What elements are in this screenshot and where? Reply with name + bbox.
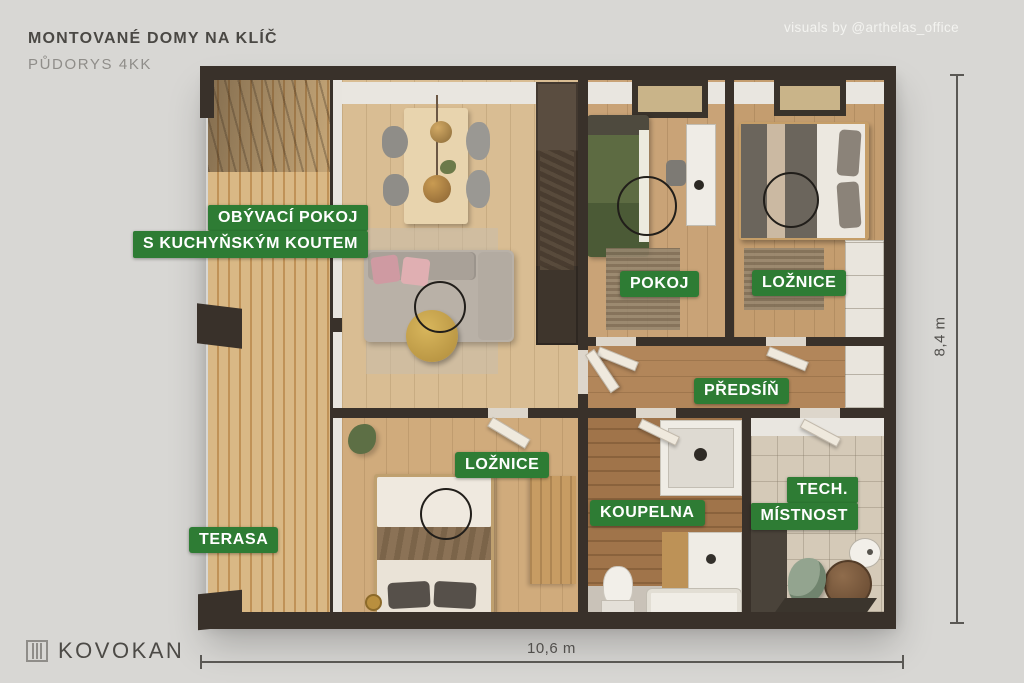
sink-faucet-icon: [706, 554, 716, 564]
annotation-circle: [763, 172, 819, 228]
wall-bottom: [208, 612, 896, 629]
washing-machine-knob-icon: [867, 549, 873, 555]
pendant-lamp-icon: [430, 121, 452, 143]
vanity-counter: [662, 532, 688, 590]
bed-pillow: [387, 581, 430, 609]
door-opening: [800, 408, 840, 418]
label-living-room: OBÝVACÍ POKOJ S KUCHYŇSKÝM KOUTEM: [155, 205, 368, 258]
kitchen-counter-texture: [540, 150, 574, 270]
terrace-side-bracket: [197, 303, 242, 349]
label-tech-line2: MÍSTNOST: [751, 503, 858, 529]
annotation-circle: [414, 281, 466, 333]
panel-house-icon: [26, 640, 48, 662]
annotation-circle: [617, 176, 677, 236]
shower-drain-icon: [694, 448, 707, 461]
credit-text: visuals by @arthelas_office: [784, 20, 959, 35]
nightstand-cabinet: [530, 476, 576, 584]
label-loznice-bottom: LOŽNICE: [455, 452, 549, 478]
dimension-tick: [950, 74, 964, 76]
door-opening: [766, 337, 806, 346]
dimension-height-label: 8,4 m: [932, 312, 949, 362]
label-koupelna: KOUPELNA: [590, 500, 705, 526]
brand-logo: KOVOKAN: [26, 638, 184, 664]
label-living-line2: S KUCHYŇSKÝM KOUTEM: [133, 231, 368, 257]
label-terasa: TERASA: [189, 527, 278, 553]
desk: [686, 124, 716, 226]
label-loznice-top: LOŽNICE: [752, 270, 846, 296]
dining-chair: [383, 174, 409, 206]
bed-pillow: [836, 181, 861, 228]
dimension-line-height: [956, 74, 958, 624]
wall-pokoj-loznice: [725, 80, 734, 340]
wardrobe: [845, 240, 884, 408]
sofa-pillow: [400, 256, 430, 286]
glass-wall-post: [330, 318, 342, 332]
dimension-line-width: [200, 661, 904, 663]
page-title: MONTOVANÉ DOMY NA KLÍČ: [28, 30, 278, 48]
glass-wall-terrace: [330, 80, 342, 612]
floor-plan-scene: MONTOVANÉ DOMY NA KLÍČ PŮDORYS 4KK visua…: [0, 0, 1024, 683]
sofa-chaise: [478, 252, 512, 340]
wall-living-rooms: [578, 80, 588, 618]
label-living-line1: OBÝVACÍ POKOJ: [208, 205, 368, 231]
bed-pillow: [836, 129, 861, 176]
dimension-width-label: 10,6 m: [527, 640, 576, 657]
gold-stool: [365, 594, 382, 611]
bed-pillow: [433, 581, 476, 609]
page-subtitle: PŮDORYS 4KK: [28, 56, 152, 73]
door-opening: [636, 408, 676, 418]
door-opening: [596, 337, 636, 346]
dimension-tick: [902, 655, 904, 669]
dining-chair: [466, 170, 490, 208]
desk-chair: [666, 160, 686, 186]
sofa-pillow: [370, 254, 400, 284]
desk-items: [694, 180, 704, 190]
wall-koupelna-tech: [742, 414, 751, 614]
loznice-window: [774, 80, 846, 116]
dining-chair: [466, 122, 490, 160]
label-tech-room: TECH. MÍSTNOST: [758, 477, 858, 530]
dimension-tick: [200, 655, 202, 669]
label-tech-line1: TECH.: [787, 477, 858, 503]
dining-chair: [382, 126, 408, 158]
pendant-lamp-icon: [423, 175, 451, 203]
label-pokoj: POKOJ: [620, 271, 699, 297]
wall-top: [200, 66, 896, 80]
brand-name: KOVOKAN: [58, 638, 184, 664]
terrace-roof-overhang: [208, 80, 330, 172]
annotation-circle: [420, 488, 472, 540]
label-predsin: PŘEDSÍŇ: [694, 378, 789, 404]
wall-right: [884, 66, 896, 626]
pokoj-window: [632, 80, 708, 118]
dimension-tick: [950, 622, 964, 624]
